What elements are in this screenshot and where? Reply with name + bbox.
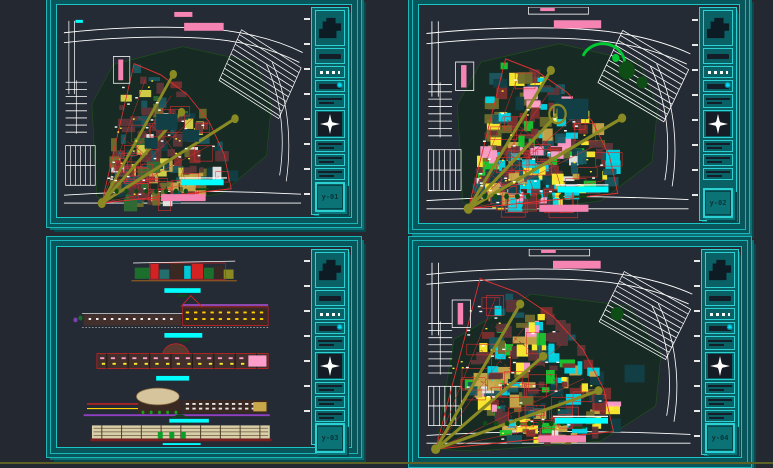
sheet-number-box: y-02 <box>703 188 733 218</box>
cyan-star-icon: ✺ <box>726 324 733 332</box>
north-arrow-box <box>315 352 345 380</box>
dark-line <box>709 344 724 346</box>
site-plan-drawing-1 <box>59 7 306 215</box>
dark-line <box>707 102 722 104</box>
project-title-box <box>705 290 735 306</box>
dark-bar <box>709 296 731 301</box>
revision-box: ✺ <box>703 80 733 92</box>
sheet-number-box: y-04 <box>705 423 735 453</box>
dark-line <box>708 340 732 342</box>
dark-line <box>709 403 724 405</box>
north-arrow-icon <box>318 354 342 378</box>
info-box-1 <box>315 336 345 350</box>
dark-line <box>706 98 730 100</box>
info-box-2 <box>315 382 345 394</box>
sheet1-titleblock: ✺y-01 <box>311 7 349 215</box>
firm-logo-box <box>705 252 735 288</box>
dark-bar <box>707 54 729 59</box>
title-highlight-bar <box>174 12 192 17</box>
info-box-1 <box>703 94 733 108</box>
dark-line <box>319 161 334 163</box>
sheet2-drawing-area[interactable] <box>421 7 694 221</box>
info-box-2 <box>705 382 735 394</box>
dark-line <box>318 98 342 100</box>
title-highlight-bar <box>169 419 209 423</box>
sheet1-drawing-area[interactable] <box>59 7 306 215</box>
dark-line <box>319 403 334 405</box>
dark-line <box>709 417 724 419</box>
dark-line <box>319 102 334 104</box>
label-underline <box>556 184 609 185</box>
white-dashes-text <box>320 71 339 74</box>
dark-line <box>709 389 724 391</box>
dark-line <box>706 143 730 145</box>
drawing-title-box <box>315 66 345 78</box>
sheet-number: y-04 <box>707 426 733 450</box>
sheet4-titleblock: ✺y-04 <box>701 249 739 455</box>
firm-logo-icon <box>317 258 343 282</box>
dark-line <box>318 399 342 401</box>
sheet4-drawing-area[interactable] <box>421 249 696 455</box>
north-arrow-icon <box>706 112 730 136</box>
north-arrow-icon <box>318 112 342 136</box>
title-highlight-bar <box>184 23 224 31</box>
cyan-star-icon: ✺ <box>336 324 343 332</box>
white-dashes-text <box>708 71 727 74</box>
sheet2-titleblock: ✺y-02 <box>699 7 737 221</box>
info-box-4 <box>705 410 735 422</box>
dark-line <box>707 147 722 149</box>
white-dashes-text <box>710 313 729 316</box>
sheet3-drawing-area[interactable] <box>59 249 306 445</box>
drawing-title-box <box>315 308 345 320</box>
scale-text-mark <box>179 340 189 342</box>
dark-line <box>707 175 722 177</box>
dark-line <box>318 340 342 342</box>
title-highlight-bar <box>75 20 82 23</box>
drawing-title-box <box>703 66 733 78</box>
dark-line <box>706 157 730 159</box>
scale-text-mark <box>196 188 209 190</box>
firm-logo-icon <box>707 258 733 282</box>
info-box-1 <box>315 94 345 108</box>
label-outline-box <box>528 7 588 14</box>
dark-line <box>318 157 342 159</box>
title-highlight-bar <box>555 418 608 424</box>
dark-line <box>319 344 334 346</box>
project-title-box <box>315 290 345 306</box>
cad-model-space[interactable]: ✺y-01 ✺y-02 ✺y-03 ✺y-04 <box>0 0 773 465</box>
margin-highlight-bar <box>461 65 466 87</box>
title-highlight-bar <box>558 186 609 192</box>
info-box-4 <box>315 410 345 422</box>
info-box-4 <box>703 168 733 180</box>
info-box-2 <box>703 140 733 152</box>
scale-text-mark <box>574 196 587 198</box>
revision-box: ✺ <box>315 322 345 334</box>
firm-logo-box <box>703 10 733 46</box>
north-arrow-box <box>705 352 735 380</box>
title-highlight-bar <box>554 20 601 28</box>
elevation-strips <box>73 261 271 441</box>
title-highlight-bar <box>539 205 588 212</box>
dark-line <box>319 175 334 177</box>
info-box-3 <box>705 396 735 408</box>
dark-bar <box>319 296 341 301</box>
sheet-number-box: y-01 <box>315 182 345 212</box>
sheet-bottom-right-site-plan[interactable]: ✺y-04 <box>408 236 752 468</box>
drawing-title-box <box>705 308 735 320</box>
site-plan-drawing-3 <box>421 249 696 455</box>
dark-line <box>319 389 334 391</box>
parking-bays-left <box>428 82 461 190</box>
info-box-4 <box>315 168 345 180</box>
title-highlight-bar <box>538 435 586 442</box>
north-arrow-icon <box>708 354 732 378</box>
title-highlight-bar <box>164 288 200 293</box>
dark-line <box>319 147 334 149</box>
dark-line <box>706 171 730 173</box>
revision-box: ✺ <box>705 322 735 334</box>
sheet-top-left-site-plan[interactable]: ✺y-01 <box>46 0 362 228</box>
sheet-number-box: y-03 <box>315 423 345 453</box>
title-highlight-bar <box>553 261 601 269</box>
cyan-star-icon: ✺ <box>724 82 731 90</box>
sheet-number: y-01 <box>317 185 343 209</box>
firm-logo-box <box>315 10 345 46</box>
sheet-top-right-site-plan[interactable]: ✺y-02 <box>408 0 750 234</box>
dark-line <box>318 171 342 173</box>
label-underline <box>179 177 227 178</box>
dark-line <box>708 385 732 387</box>
info-box-1 <box>705 336 735 350</box>
title-highlight-bar <box>161 194 205 201</box>
scale-text-mark <box>178 295 188 297</box>
project-title-box <box>703 48 733 64</box>
north-arrow-box <box>315 110 345 138</box>
title-highlight-bar <box>163 443 201 445</box>
elevations-drawing <box>59 249 306 445</box>
white-dashes-text <box>320 313 339 316</box>
revision-box: ✺ <box>315 80 345 92</box>
sheet-number: y-03 <box>317 426 343 450</box>
sheet-number: y-02 <box>705 191 731 215</box>
firm-logo-icon <box>317 16 343 40</box>
dark-line <box>318 413 342 415</box>
dark-line <box>708 413 732 415</box>
title-highlight-bar <box>181 179 224 185</box>
dark-line <box>707 161 722 163</box>
title-highlight-bar <box>541 250 556 253</box>
site-plan-drawing-2 <box>421 7 694 221</box>
north-arrow-box <box>703 110 733 138</box>
info-box-3 <box>315 396 345 408</box>
title-highlight-bar <box>156 376 189 381</box>
dark-line <box>318 143 342 145</box>
margin-highlight-bar <box>118 59 123 80</box>
sheet-bottom-left-elevations[interactable]: ✺y-03 <box>46 236 362 458</box>
dark-bar <box>319 54 341 59</box>
parking-bays-left <box>66 80 96 185</box>
title-highlight-bar <box>540 8 555 11</box>
info-box-3 <box>703 154 733 166</box>
dark-line <box>708 399 732 401</box>
firm-logo-icon <box>705 16 731 40</box>
cyan-star-icon: ✺ <box>336 82 343 90</box>
margin-highlight-bar <box>458 303 464 325</box>
sheet3-titleblock: ✺y-03 <box>311 249 349 445</box>
label-outline-box <box>529 249 590 256</box>
title-highlight-bar <box>164 333 202 338</box>
project-title-box <box>315 48 345 64</box>
scale-text-mark <box>573 427 586 429</box>
bottom-rule-line <box>0 462 773 464</box>
info-box-3 <box>315 154 345 166</box>
info-box-2 <box>315 140 345 152</box>
dark-line <box>319 417 334 419</box>
label-underline <box>553 416 608 417</box>
firm-logo-box <box>315 252 345 288</box>
dark-line <box>318 385 342 387</box>
